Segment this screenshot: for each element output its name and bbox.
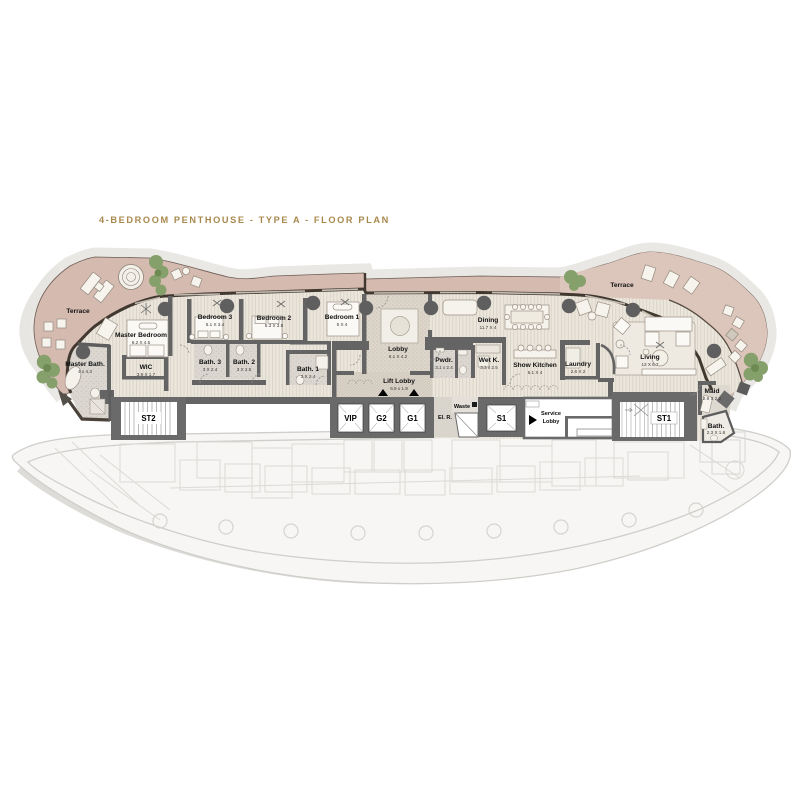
svg-text:Bath.: Bath. — [708, 423, 725, 430]
svg-text:WIC: WIC — [140, 364, 153, 371]
svg-text:3 X 2.4: 3 X 2.4 — [203, 367, 218, 372]
svg-text:4-BEDROOM PENTHOUSE - TYPE A -: 4-BEDROOM PENTHOUSE - TYPE A - FLOOR PLA… — [99, 215, 390, 225]
svg-text:6.9 x 1.9: 6.9 x 1.9 — [390, 386, 408, 391]
svg-text:Dining: Dining — [478, 317, 499, 324]
svg-text:11.7 X 4: 11.7 X 4 — [480, 325, 497, 330]
svg-text:Bath. 3: Bath. 3 — [199, 359, 221, 366]
svg-text:Bedroom 1: Bedroom 1 — [325, 314, 360, 321]
svg-text:Show Kitchen: Show Kitchen — [513, 362, 557, 369]
svg-text:3.3 x 2.5: 3.3 x 2.5 — [480, 365, 498, 370]
svg-text:Laundry: Laundry — [565, 361, 591, 368]
svg-text:2.6 X 2: 2.6 X 2 — [571, 369, 586, 374]
svg-text:5.1 X 3.4: 5.1 X 3.4 — [206, 322, 225, 327]
svg-text:Lobby: Lobby — [388, 346, 408, 353]
svg-text:Wet K.: Wet K. — [479, 357, 500, 364]
svg-text:5.1 X 4: 5.1 X 4 — [528, 370, 543, 375]
svg-text:Bath. 1: Bath. 1 — [297, 366, 319, 373]
svg-text:G1: G1 — [407, 414, 418, 423]
svg-text:2.9 X 2.2: 2.9 X 2.2 — [703, 396, 722, 401]
svg-text:Maid: Maid — [704, 388, 719, 395]
svg-text:Pwdr.: Pwdr. — [435, 357, 453, 364]
svg-text:3.9 X 1.7: 3.9 X 1.7 — [137, 372, 156, 377]
svg-text:S1: S1 — [497, 414, 507, 423]
svg-text:6.2 X 4.5: 6.2 X 4.5 — [132, 340, 151, 345]
svg-text:3 X 2.4: 3 X 2.4 — [301, 374, 316, 379]
svg-text:Living: Living — [640, 354, 659, 361]
svg-text:3.1 x 2.4: 3.1 x 2.4 — [435, 365, 453, 370]
svg-text:2.3 X 1.8: 2.3 X 1.8 — [707, 430, 726, 435]
svg-text:El. R.: El. R. — [438, 415, 452, 421]
svg-text:ST1: ST1 — [657, 414, 672, 423]
svg-text:Lobby: Lobby — [543, 419, 561, 425]
svg-text:Bedroom 3: Bedroom 3 — [198, 314, 233, 321]
svg-text:Master Bedroom: Master Bedroom — [115, 332, 167, 339]
svg-text:Master Bath.: Master Bath. — [65, 361, 105, 368]
svg-text:G2: G2 — [376, 414, 387, 423]
svg-text:ST2: ST2 — [141, 414, 156, 423]
svg-text:Waste: Waste — [454, 404, 470, 410]
svg-text:Bedroom 2: Bedroom 2 — [257, 315, 292, 322]
svg-text:Bath. 2: Bath. 2 — [233, 359, 255, 366]
svg-text:Service: Service — [541, 411, 561, 417]
svg-text:4 x 4.3: 4 x 4.3 — [78, 369, 92, 374]
svg-text:6.1 X 4.2: 6.1 X 4.2 — [389, 354, 408, 359]
svg-text:5 X 4: 5 X 4 — [337, 322, 348, 327]
svg-text:Terrace: Terrace — [66, 308, 90, 315]
svg-text:3 X 2.5: 3 X 2.5 — [237, 367, 252, 372]
svg-text:5.3 X 3.8: 5.3 X 3.8 — [265, 323, 284, 328]
svg-text:Terrace: Terrace — [610, 282, 634, 289]
svg-text:Lift Lobby: Lift Lobby — [383, 378, 415, 385]
svg-text:VIP: VIP — [344, 414, 357, 423]
svg-text:13 X 6.7: 13 X 6.7 — [641, 362, 659, 367]
